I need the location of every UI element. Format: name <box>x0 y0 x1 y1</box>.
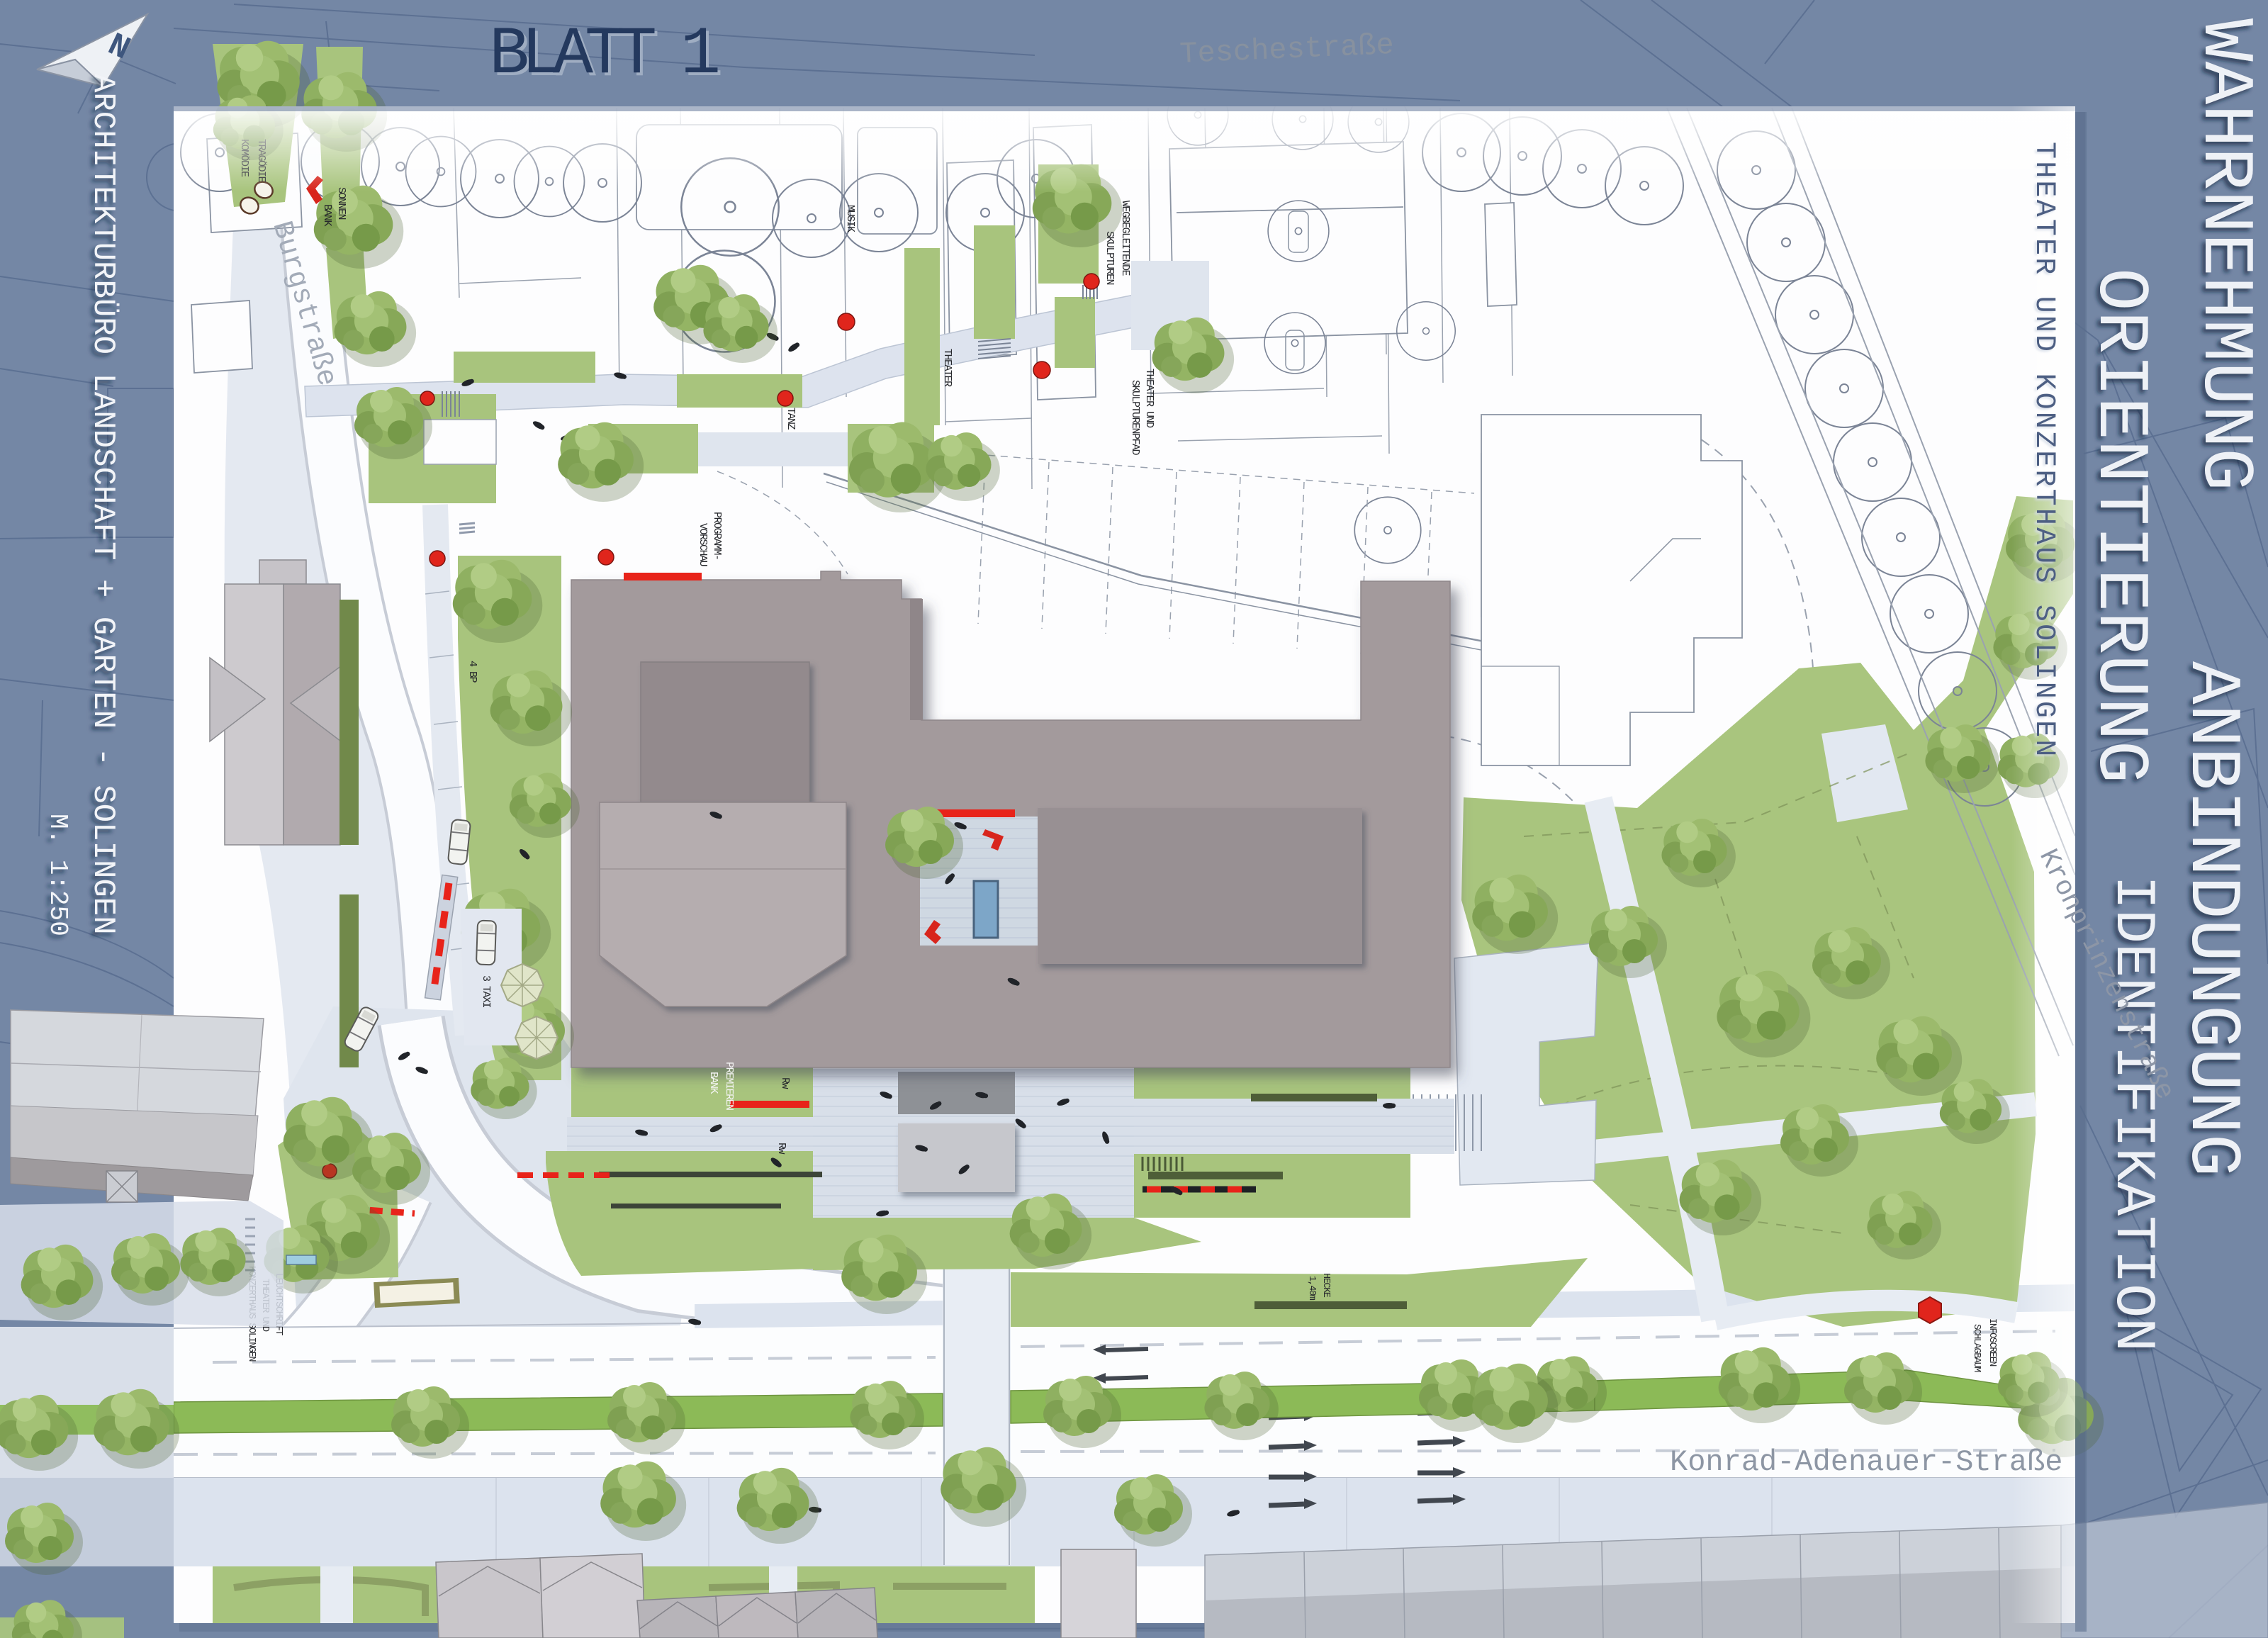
svg-text:PREMIEREN: PREMIEREN <box>723 1062 735 1110</box>
svg-text:THEATER UND: THEATER UND <box>1143 369 1155 428</box>
svg-text:PROGRAMM-: PROGRAMM- <box>711 512 723 560</box>
svg-text:1,40m: 1,40m <box>1306 1276 1317 1301</box>
svg-text:THEATER: THEATER <box>941 349 953 387</box>
svg-text:ARCHITEKTURBÜRO LANDSCHAFT + G: ARCHITEKTURBÜRO LANDSCHAFT + GARTEN - SO… <box>85 74 120 935</box>
svg-text:TANZ: TANZ <box>785 408 797 430</box>
svg-text:BLATT 1: BLATT 1 <box>489 16 718 93</box>
svg-text:SKULPTURENPFAD: SKULPTURENPFAD <box>1129 380 1141 456</box>
svg-text:SCHLAGBAUM: SCHLAGBAUM <box>1971 1324 1982 1372</box>
svg-text:INFOSCREEN: INFOSCREEN <box>1987 1318 1997 1367</box>
svg-text:WAHRNEHMUNG: WAHRNEHMUNG <box>2184 18 2264 491</box>
svg-text:Konrad-Adenauer-Straße: Konrad-Adenauer-Straße <box>1670 1445 2063 1479</box>
svg-text:THEATER UND KONZERTHAUS SOLING: THEATER UND KONZERTHAUS SOLINGEN <box>2028 142 2060 759</box>
svg-text:BANK: BANK <box>321 204 333 227</box>
svg-text:MUSIK: MUSIK <box>844 205 856 232</box>
svg-text:Rw: Rw <box>779 1077 791 1089</box>
svg-text:3 TAXI: 3 TAXI <box>480 975 492 1008</box>
svg-text:BANK: BANK <box>707 1072 719 1094</box>
svg-text:4 BP: 4 BP <box>466 661 478 683</box>
svg-text:SKULPTUREN: SKULPTUREN <box>1104 231 1116 285</box>
svg-text:WEGBEGLEITENDE: WEGBEGLEITENDE <box>1119 201 1131 276</box>
svg-text:ORIENTIERUNG: ORIENTIERUNG <box>2079 268 2160 783</box>
svg-text:ANBINDUNGUNG: ANBINDUNGUNG <box>2171 661 2252 1177</box>
svg-text:HECKE: HECKE <box>1320 1273 1331 1298</box>
svg-text:SONNEN: SONNEN <box>335 187 347 220</box>
svg-text:M. 1:250: M. 1:250 <box>43 814 72 936</box>
svg-text:Rw: Rw <box>775 1143 787 1155</box>
svg-text:VORSCHAU: VORSCHAU <box>697 523 709 566</box>
